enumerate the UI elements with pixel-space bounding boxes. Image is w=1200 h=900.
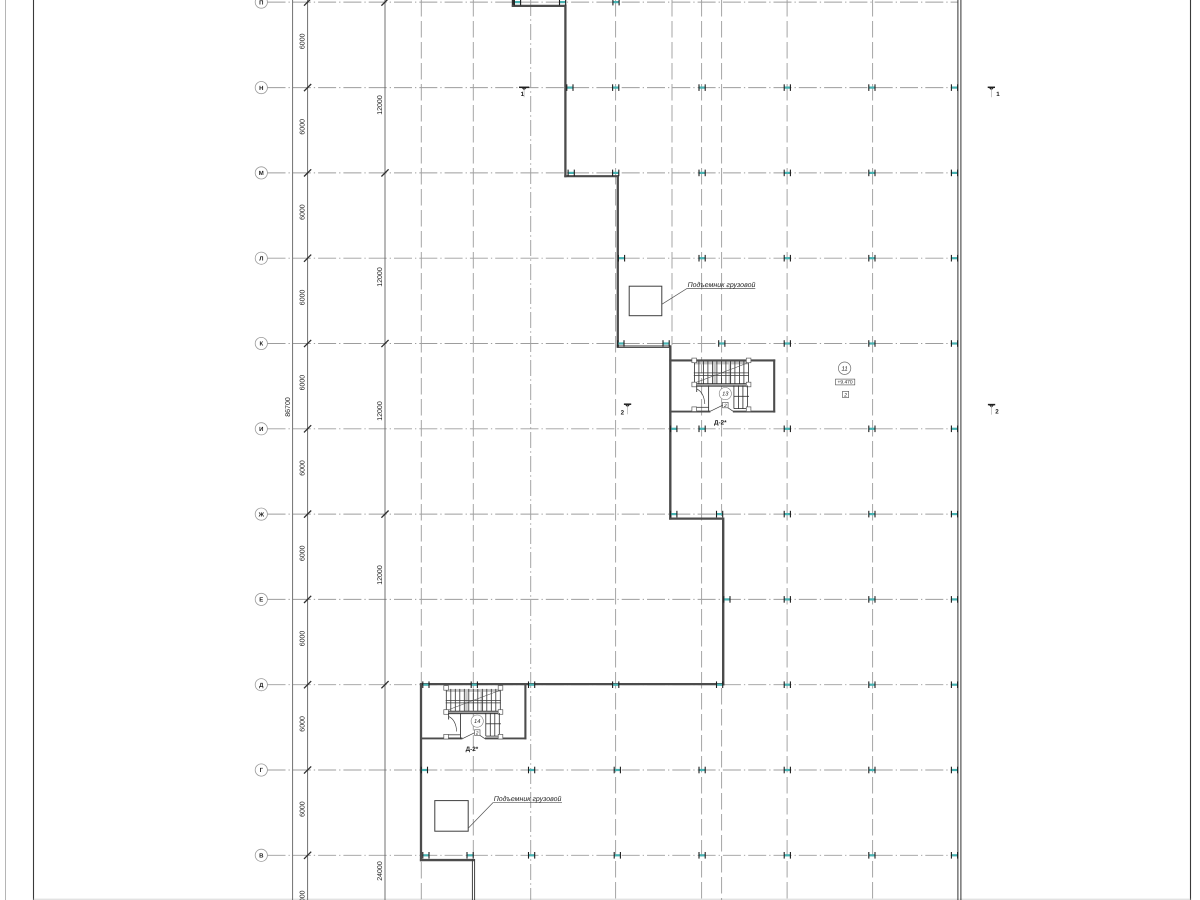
svg-text:6000: 6000: [300, 204, 307, 220]
svg-text:Ж: Ж: [258, 511, 265, 518]
svg-text:6000: 6000: [300, 375, 307, 391]
svg-text:+9.470: +9.470: [838, 380, 853, 386]
svg-text:6000: 6000: [300, 119, 307, 135]
svg-text:6000: 6000: [300, 545, 307, 561]
svg-text:К: К: [259, 341, 263, 348]
svg-text:12000: 12000: [377, 95, 384, 115]
svg-text:12000: 12000: [377, 401, 384, 421]
svg-text:6000: 6000: [300, 801, 307, 817]
svg-text:2000: 2000: [300, 890, 307, 900]
svg-text:И: И: [259, 426, 263, 433]
svg-text:2: 2: [475, 730, 479, 735]
svg-text:6000: 6000: [300, 716, 307, 732]
svg-text:12000: 12000: [377, 565, 384, 585]
svg-text:Г: Г: [260, 767, 264, 774]
svg-text:Д-2*: Д-2*: [714, 419, 727, 426]
svg-text:6000: 6000: [300, 460, 307, 476]
svg-text:В: В: [259, 853, 264, 860]
svg-text:24000: 24000: [377, 861, 384, 881]
svg-text:13: 13: [722, 392, 729, 398]
svg-text:Д: Д: [259, 682, 264, 689]
svg-text:Подъемник грузовой: Подъемник грузовой: [494, 795, 562, 803]
svg-text:6000: 6000: [300, 290, 307, 306]
svg-text:П: П: [259, 0, 263, 6]
svg-text:14: 14: [474, 719, 480, 725]
svg-text:Н: Н: [259, 85, 263, 92]
svg-text:Д-2*: Д-2*: [466, 746, 479, 753]
svg-text:2: 2: [843, 392, 847, 398]
svg-text:Л: Л: [259, 255, 263, 262]
svg-text:2: 2: [621, 409, 625, 416]
svg-text:12000: 12000: [377, 267, 384, 287]
svg-text:М: М: [259, 170, 264, 177]
svg-text:2: 2: [723, 403, 727, 408]
svg-text:Е: Е: [259, 597, 263, 604]
svg-text:2: 2: [995, 408, 999, 415]
svg-text:11: 11: [841, 366, 847, 373]
svg-text:1: 1: [996, 91, 1000, 98]
svg-text:6000: 6000: [300, 33, 307, 49]
svg-text:1: 1: [521, 91, 525, 98]
svg-text:6000: 6000: [300, 631, 307, 647]
svg-text:Подъемник грузовой: Подъемник грузовой: [688, 281, 756, 289]
svg-text:86700: 86700: [285, 397, 292, 417]
